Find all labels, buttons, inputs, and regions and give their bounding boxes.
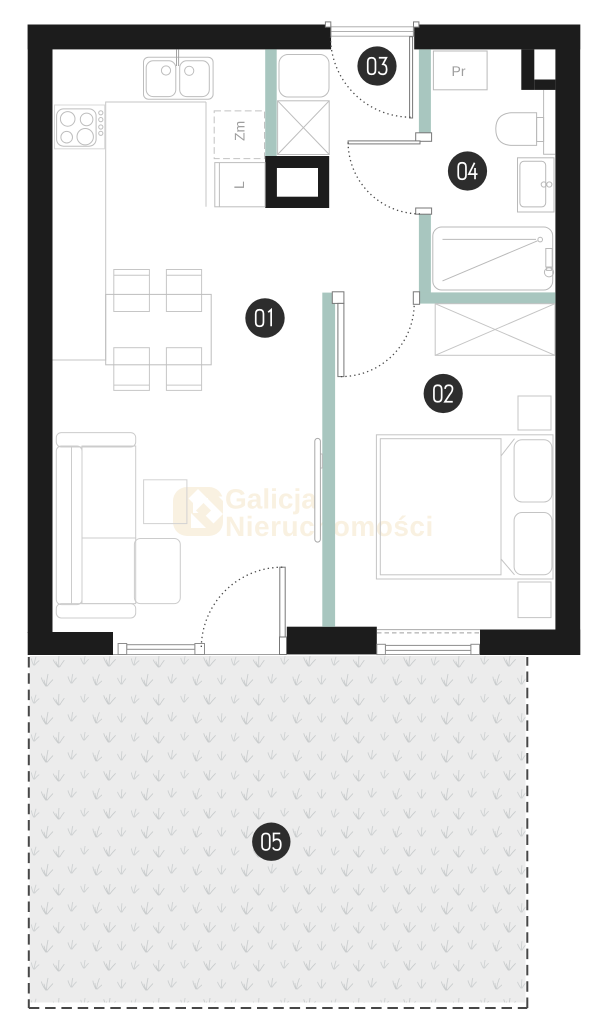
svg-text:L: L	[231, 181, 247, 189]
svg-text:Pr: Pr	[452, 63, 466, 79]
svg-text:Zm: Zm	[232, 121, 248, 141]
